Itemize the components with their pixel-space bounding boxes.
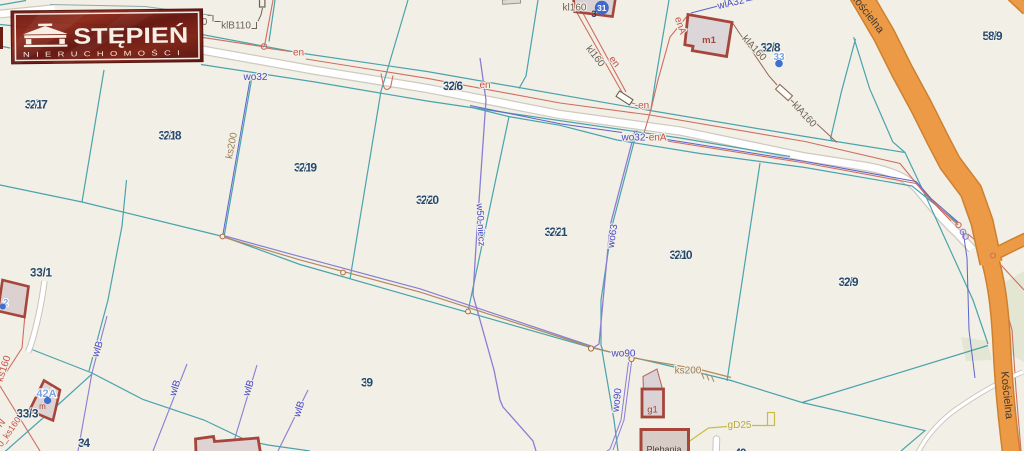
svg-text:klB110: klB110 — [221, 21, 251, 32]
svg-text:gD25: gD25 — [728, 420, 752, 431]
svg-text:3: 3 — [591, 9, 596, 19]
svg-text:w50-niecz: w50-niecz — [474, 202, 487, 247]
svg-text:m: m — [39, 402, 46, 411]
svg-text:32/19: 32/19 — [294, 161, 317, 175]
svg-text:33/3: 33/3 — [17, 407, 39, 421]
svg-text:39: 39 — [361, 376, 373, 390]
svg-text:wo90: wo90 — [611, 349, 636, 360]
svg-text:32/17: 32/17 — [25, 97, 48, 111]
svg-text:wo32-enA: wo32-enA — [620, 133, 666, 144]
svg-text:NIERUCHOMOŚCI: NIERUCHOMOŚCI — [23, 48, 186, 59]
svg-text:-en: -en — [635, 101, 649, 112]
svg-text:en: en — [293, 48, 304, 59]
svg-text:Plebania: Plebania — [646, 445, 681, 451]
svg-text:en: en — [479, 80, 490, 91]
svg-text:32/6: 32/6 — [443, 79, 463, 93]
svg-text:33/1: 33/1 — [30, 266, 52, 280]
svg-text:g1: g1 — [647, 405, 658, 416]
svg-text:58/9: 58/9 — [983, 29, 1003, 43]
svg-text:m1: m1 — [702, 35, 716, 46]
svg-text:32/21: 32/21 — [545, 225, 568, 239]
svg-text:32/18: 32/18 — [159, 129, 182, 143]
svg-text:kl160: kl160 — [563, 3, 587, 14]
svg-text:STĘPIEŃ: STĘPIEŃ — [73, 22, 188, 49]
svg-text:wo32: wo32 — [243, 72, 268, 83]
svg-text:31: 31 — [597, 3, 607, 13]
svg-text:34: 34 — [78, 436, 90, 450]
svg-text:32/9: 32/9 — [839, 275, 859, 289]
svg-text:32/10: 32/10 — [670, 248, 693, 262]
svg-text:40: 40 — [735, 446, 747, 451]
svg-text:ks200: ks200 — [675, 366, 702, 377]
svg-text:32/20: 32/20 — [416, 193, 439, 207]
